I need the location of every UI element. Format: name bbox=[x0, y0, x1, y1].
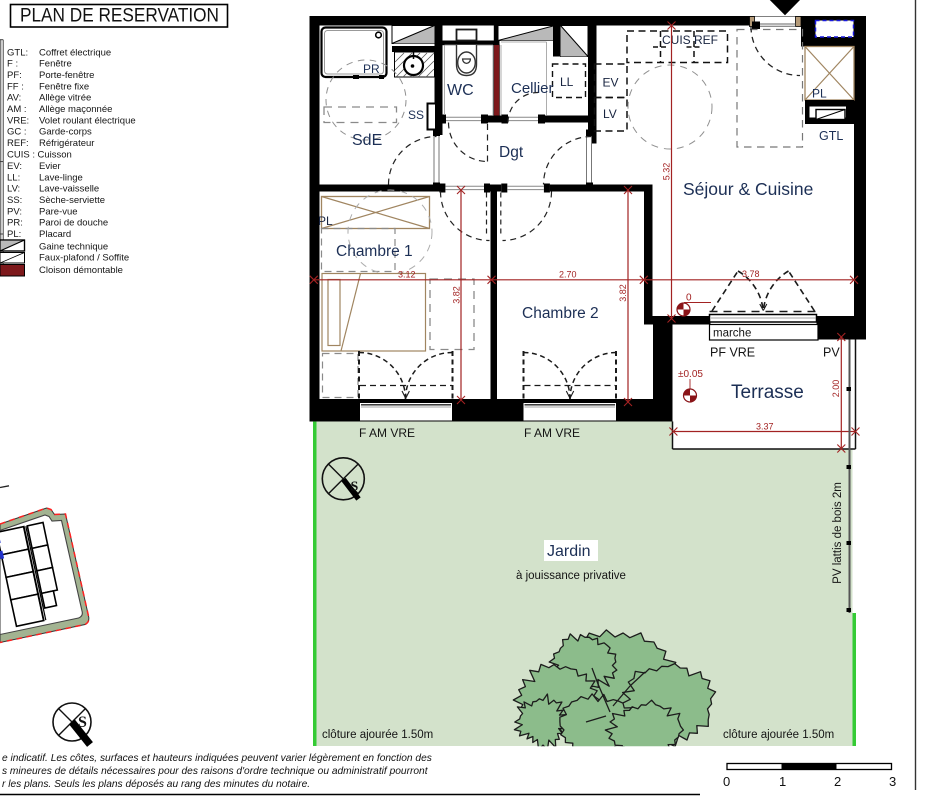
svg-text:F :: F : bbox=[7, 59, 18, 70]
svg-text:3.12: 3.12 bbox=[398, 270, 416, 280]
svg-text:Evier: Evier bbox=[39, 161, 61, 172]
svg-text:2.70: 2.70 bbox=[559, 270, 577, 280]
svg-text:FF :: FF : bbox=[7, 81, 24, 92]
svg-text:1: 1 bbox=[779, 774, 786, 789]
svg-text:Faux-plafond / Soffite: Faux-plafond / Soffite bbox=[39, 253, 129, 264]
svg-text:Sèche-serviette: Sèche-serviette bbox=[39, 195, 105, 206]
svg-text:S: S bbox=[78, 714, 87, 731]
svg-text:Allège maçonnée: Allège maçonnée bbox=[39, 104, 112, 115]
svg-text:F AM VRE: F AM VRE bbox=[524, 426, 580, 440]
svg-text:Fenêtre: Fenêtre bbox=[39, 59, 72, 70]
svg-text:PL:: PL: bbox=[7, 229, 21, 240]
svg-text:clôture ajourée 1.50m: clôture ajourée 1.50m bbox=[322, 729, 433, 741]
svg-text:Porte-fenêtre: Porte-fenêtre bbox=[39, 70, 94, 81]
svg-text:Pare-vue: Pare-vue bbox=[39, 206, 78, 217]
svg-text:Chambre 2: Chambre 2 bbox=[522, 305, 599, 322]
svg-text:PL: PL bbox=[812, 87, 827, 101]
svg-text:Lave-linge: Lave-linge bbox=[39, 172, 83, 183]
svg-text:S: S bbox=[351, 480, 359, 495]
svg-text:3.37: 3.37 bbox=[756, 422, 774, 432]
svg-text:Fenêtre fixe: Fenêtre fixe bbox=[39, 81, 89, 92]
svg-text:Réfrigérateur: Réfrigérateur bbox=[39, 138, 94, 149]
svg-text:PV lattis de bois 2m: PV lattis de bois 2m bbox=[832, 482, 844, 584]
svg-text:r les plans. Seuls les plans d: r les plans. Seuls les plans déposés au … bbox=[2, 779, 310, 790]
svg-text:PF:: PF: bbox=[7, 70, 22, 81]
svg-text:Jardin: Jardin bbox=[547, 543, 591, 560]
svg-text:Cellier: Cellier bbox=[511, 80, 554, 97]
svg-text:GTL: GTL bbox=[819, 129, 843, 143]
svg-text:0: 0 bbox=[686, 293, 692, 304]
svg-text:LL: LL bbox=[560, 75, 574, 89]
svg-text:marche: marche bbox=[713, 328, 751, 340]
svg-text:Chambre 1: Chambre 1 bbox=[336, 243, 413, 260]
svg-text:à jouissance privative: à jouissance privative bbox=[516, 570, 626, 582]
svg-text:AV:: AV: bbox=[7, 93, 21, 104]
svg-text:Placard: Placard bbox=[39, 229, 71, 240]
svg-text:3: 3 bbox=[889, 774, 896, 789]
svg-text:2: 2 bbox=[834, 774, 841, 789]
svg-text:3.78: 3.78 bbox=[742, 269, 760, 279]
svg-text:REF:: REF: bbox=[7, 138, 29, 149]
svg-text:VRE:: VRE: bbox=[7, 115, 29, 126]
svg-text:2.00: 2.00 bbox=[831, 380, 841, 398]
svg-text:LV: LV bbox=[603, 107, 617, 121]
svg-text:SS:: SS: bbox=[7, 195, 22, 206]
svg-text:PV:: PV: bbox=[7, 206, 22, 217]
svg-text:3.82: 3.82 bbox=[618, 284, 628, 302]
svg-text:F AM VRE: F AM VRE bbox=[359, 426, 415, 440]
svg-text:s mineures de détails nécessai: s mineures de détails nécessaires pour d… bbox=[2, 766, 429, 777]
svg-text:Séjour & Cuisine: Séjour & Cuisine bbox=[683, 179, 813, 199]
svg-text:Lave-vaisselle: Lave-vaisselle bbox=[39, 184, 99, 195]
svg-text:clôture ajourée 1.50m: clôture ajourée 1.50m bbox=[723, 729, 834, 741]
svg-text:PR: PR bbox=[363, 62, 380, 76]
svg-text:Cuisson: Cuisson bbox=[38, 149, 72, 160]
svg-text:EV:: EV: bbox=[7, 161, 22, 172]
svg-text:Cloison démontable: Cloison démontable bbox=[39, 265, 123, 276]
svg-text:Terrasse: Terrasse bbox=[731, 382, 804, 403]
svg-text:Gaine technique: Gaine technique bbox=[39, 241, 108, 252]
svg-text:Coffret électrique: Coffret électrique bbox=[39, 47, 111, 58]
svg-text:Dgt: Dgt bbox=[499, 144, 524, 161]
svg-text:PV: PV bbox=[823, 346, 840, 360]
svg-text:GC :: GC : bbox=[7, 127, 27, 138]
svg-text:Allège vitrée: Allège vitrée bbox=[39, 93, 91, 104]
svg-text:PR:: PR: bbox=[7, 218, 23, 229]
svg-text:3.82: 3.82 bbox=[452, 286, 462, 304]
svg-text:5.32: 5.32 bbox=[662, 163, 672, 181]
svg-text:WC: WC bbox=[447, 82, 474, 99]
svg-text:LL:: LL: bbox=[7, 172, 20, 183]
svg-text:e indicatif. Les côtes, surfac: e indicatif. Les côtes, surfaces et haut… bbox=[2, 753, 432, 764]
svg-text:Paroi de douche: Paroi de douche bbox=[39, 218, 108, 229]
svg-text:GTL:: GTL: bbox=[7, 47, 28, 58]
svg-text:Volet roulant électrique: Volet roulant électrique bbox=[39, 115, 136, 126]
svg-text:±0.05: ±0.05 bbox=[678, 369, 703, 380]
svg-text:CUIS REF: CUIS REF bbox=[662, 33, 718, 47]
svg-text:SS: SS bbox=[408, 108, 424, 122]
svg-text:PL: PL bbox=[318, 214, 333, 228]
svg-text:EV: EV bbox=[603, 76, 619, 90]
svg-text:PLAN DE RESERVATION: PLAN DE RESERVATION bbox=[20, 5, 219, 27]
svg-text:Garde-corps: Garde-corps bbox=[39, 127, 92, 138]
svg-text:0: 0 bbox=[723, 774, 730, 789]
svg-text:LV:: LV: bbox=[7, 184, 20, 195]
svg-text:CUIS :: CUIS : bbox=[7, 149, 35, 160]
svg-text:AM :: AM : bbox=[7, 104, 27, 115]
svg-text:SdE: SdE bbox=[352, 132, 382, 149]
svg-text:PF VRE: PF VRE bbox=[710, 346, 755, 360]
